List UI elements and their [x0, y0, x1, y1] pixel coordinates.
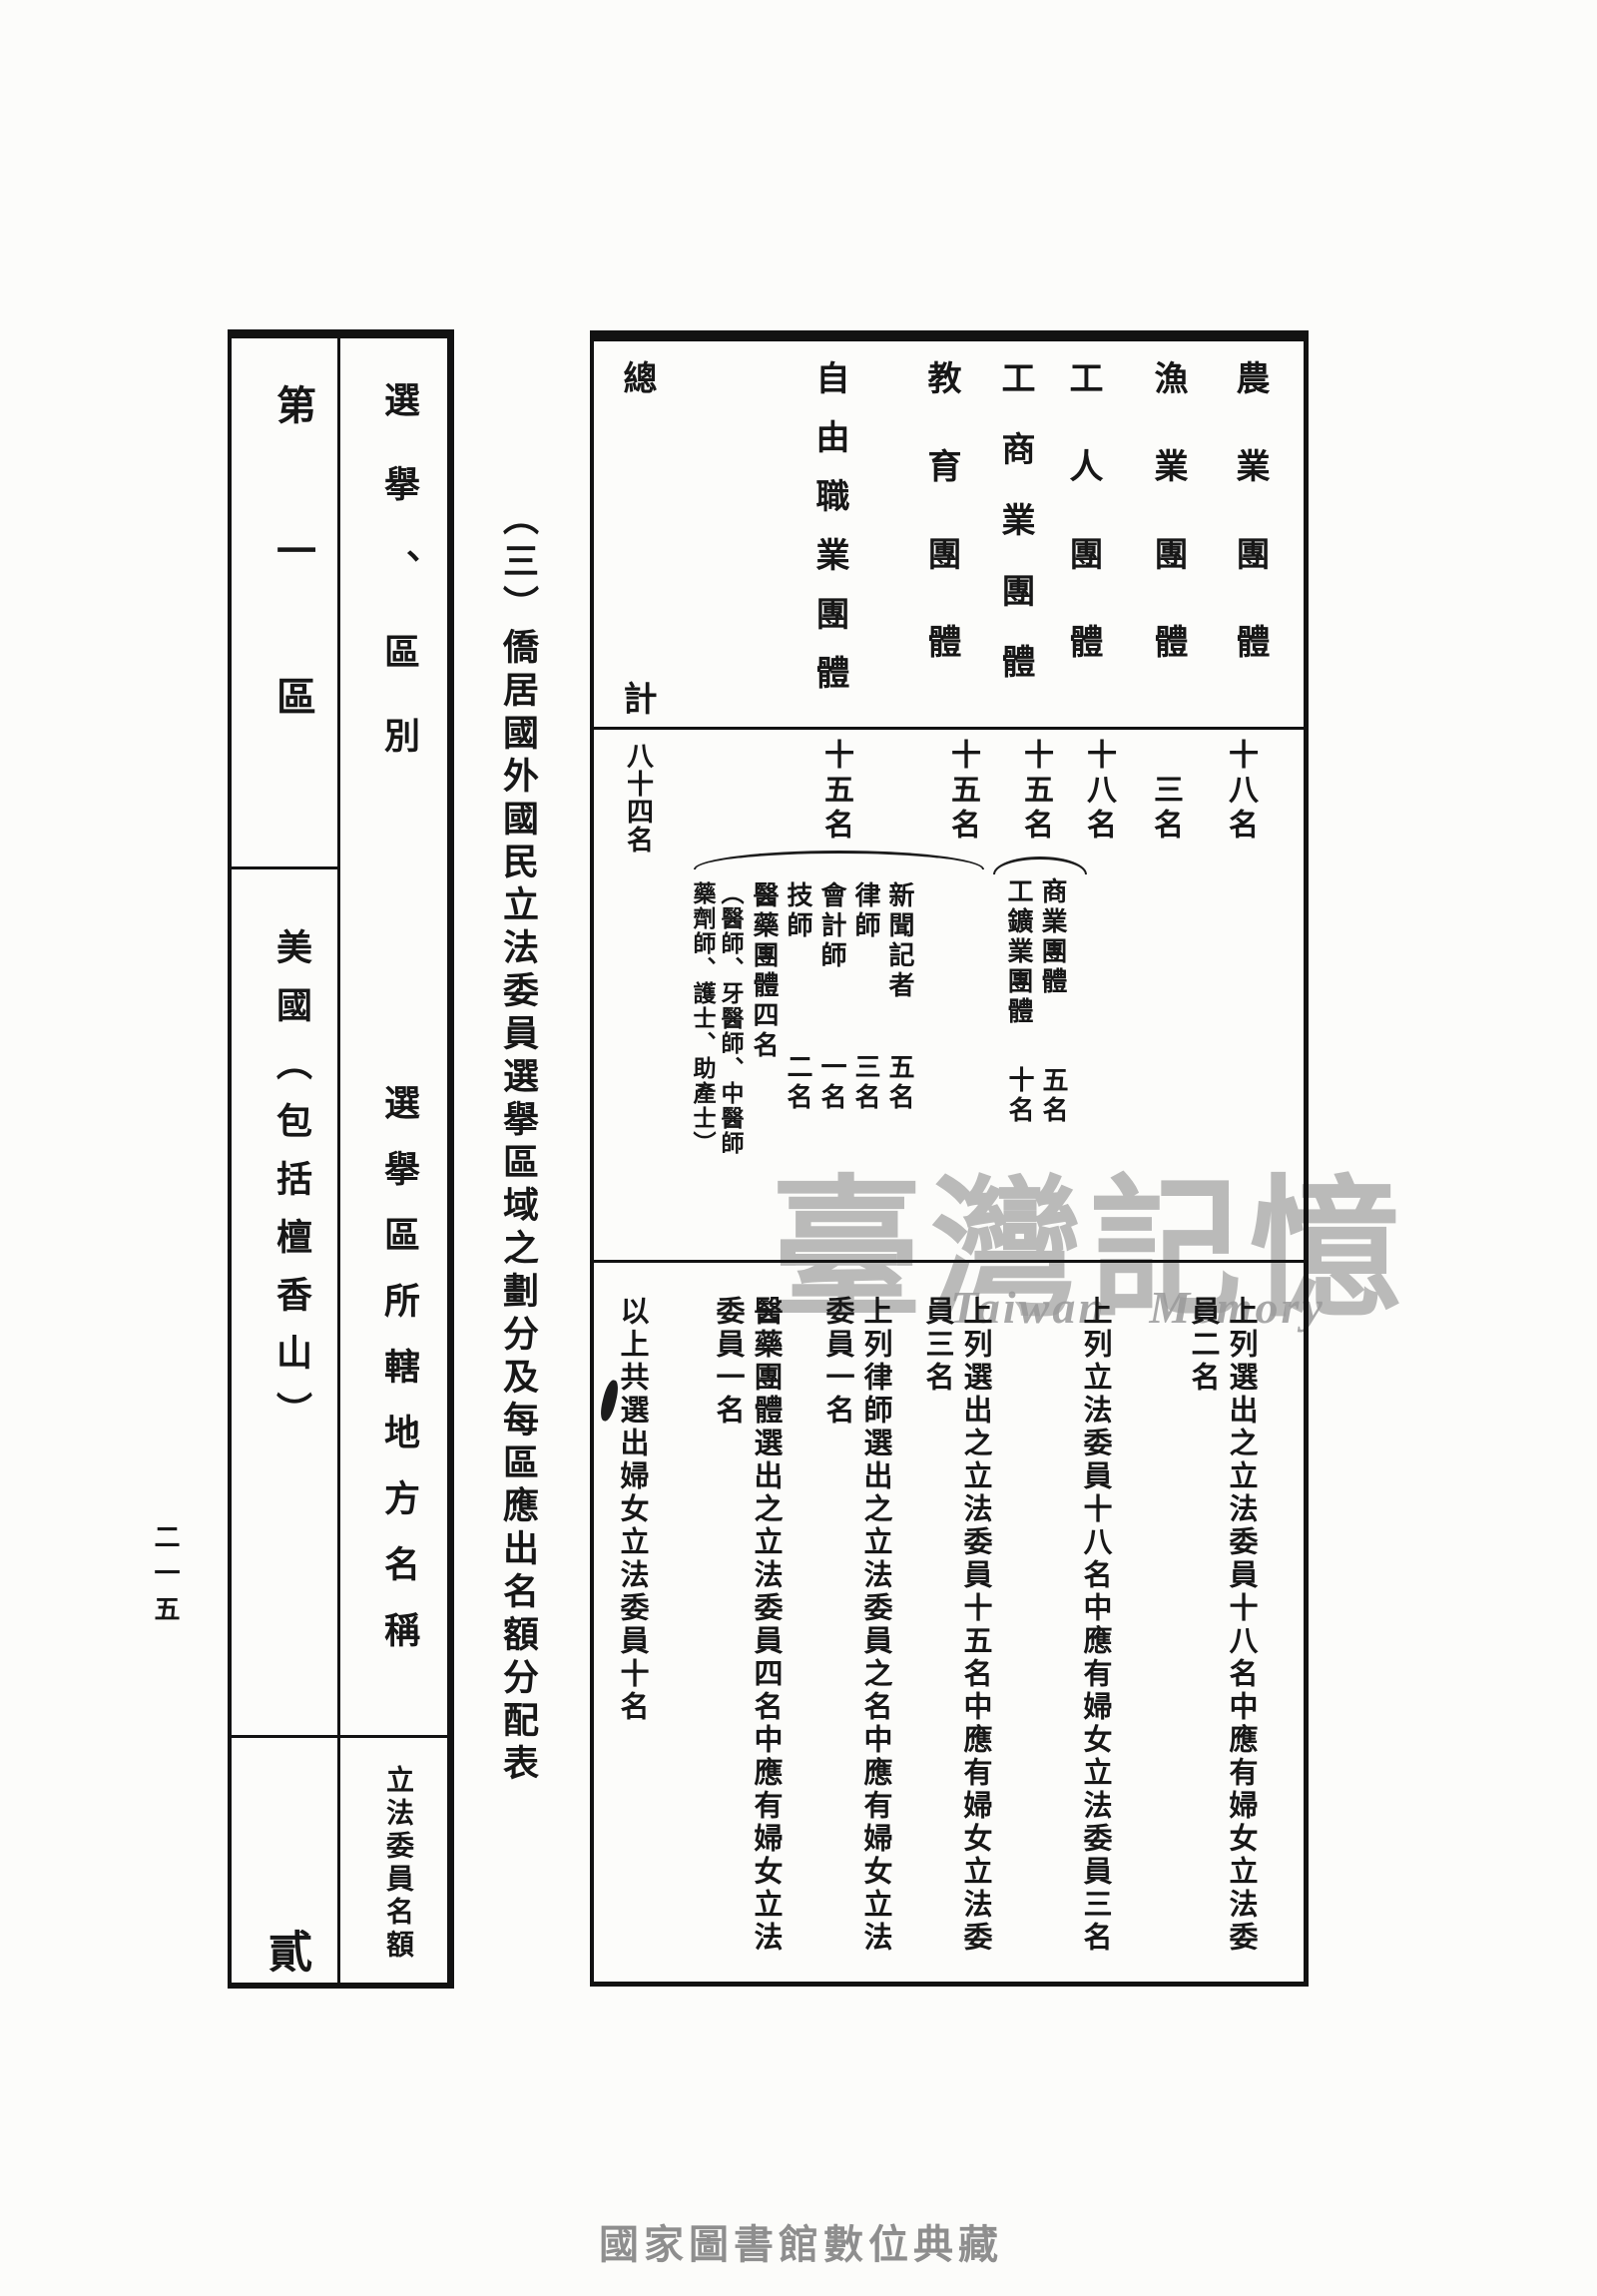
district-label-election-district: 選擧、區別 — [373, 381, 425, 801]
footer-library-caption: 國家圖書館數位典藏 — [599, 2212, 1003, 2270]
subgroup-engineers-count: 二名 — [780, 1053, 816, 1113]
column-header-agriculture: 農業團體 — [1225, 360, 1274, 712]
district-label-covered-area: 選擧區所轄地方名稱 — [373, 1084, 425, 1677]
quota-table-border-bottom — [590, 1982, 1309, 1987]
subgroup-medical-name: 醫藥團體四名 — [746, 881, 783, 1061]
subgroup-lawyers-count: 三名 — [847, 1053, 884, 1113]
subgroup-commerce-name: 商業團體 — [1034, 877, 1071, 997]
district-table-row-divider-1 — [228, 866, 337, 869]
quota-workers: 十八名 — [1076, 739, 1120, 844]
column-header-fishery: 漁業團體 — [1143, 360, 1192, 712]
quota-total: 八十四名 — [619, 742, 658, 854]
subgroup-commerce-count: 五名 — [1035, 1066, 1072, 1126]
district-value-first-district: 第一區 — [264, 384, 321, 822]
note-agriculture-women: 上列選出之立法委員十八名中應有婦女立法委員二名 — [1180, 1296, 1260, 1956]
column-header-workers: 工人團體 — [1058, 360, 1107, 712]
district-table-border-left — [228, 329, 232, 1989]
column-header-free-professions: 自由職業團體 — [804, 360, 853, 714]
district-table-border-top — [228, 329, 454, 338]
subgroup-engineers-name: 技師 — [780, 881, 816, 941]
quota-industry-commerce: 十五名 — [1013, 739, 1057, 844]
quota-fishery: 三名 — [1143, 774, 1187, 844]
subgroup-accountants-count: 一名 — [813, 1053, 850, 1113]
district-table-column-divider — [337, 329, 340, 1989]
column-header-total: 總計 — [612, 360, 661, 1001]
quota-table-border-top — [590, 330, 1309, 341]
note-education-women: 上列選出之立法委員十五名中應有婦女立法委員三名 — [914, 1296, 994, 1956]
column-header-education: 教育團體 — [916, 360, 965, 712]
page-number: 二一五 — [147, 1523, 184, 1631]
note-lawyers-women: 上列律師選出之立法委員之名中應有婦女立法委員一名 — [814, 1296, 894, 1956]
quota-table-header-divider — [594, 727, 1304, 730]
medical-members-column-2: 藥劑師、護士、助產士︶ — [685, 881, 719, 1156]
district-table-row-divider-2 — [228, 1735, 454, 1738]
district-table: 選擧、區別 第一區 選擧區所轄地方名稱 美國（包括檀香山） 立法委員名額 貳 — [228, 329, 454, 1989]
subgroup-journalists-count: 五名 — [881, 1053, 918, 1113]
district-value-usa-honolulu: 美國（包括檀香山） — [266, 928, 317, 1449]
quota-free-professions: 十五名 — [813, 739, 857, 844]
district-table-border-right — [447, 329, 454, 1989]
subgroup-mining-name: 工鑛業團體 — [1000, 877, 1037, 1027]
note-medical-women: 醫藥團體選出之立法委員四名中應有婦女立法委員一名 — [705, 1296, 785, 1956]
quota-table-notes-divider — [594, 1260, 1304, 1263]
subgroup-mining-count: 十名 — [1001, 1066, 1038, 1126]
subgroup-accountants-name: 會計師 — [813, 881, 850, 971]
quota-table: 農業團體 漁業團體 工人團體 工商業團體 教育團體 自由職業團體 總計 十八名 … — [590, 330, 1309, 1987]
column-header-industry-commerce: 工商業團體 — [990, 360, 1039, 715]
quota-agriculture: 十八名 — [1218, 739, 1262, 844]
subgroup-journalists-name: 新聞記者 — [881, 881, 918, 1001]
note-workers-women: 上列立法委員十八名中應有婦女立法委員三名 — [1074, 1296, 1114, 1965]
quota-table-border-left — [590, 330, 594, 1987]
district-value-quota-two: 貳 — [254, 1929, 317, 1973]
section-title: （三）僑居國外國民立法委員選擧區域之劃分及每區應出名額分配表 — [492, 499, 544, 1807]
quota-table-border-right — [1304, 330, 1309, 1987]
district-table-border-bottom — [228, 1983, 454, 1989]
scanned-document-page: 臺灣記憶 Taiwan Memory 選擧、區別 第一區 選擧區所轄地方名稱 美… — [0, 0, 1597, 2296]
quota-education: 十五名 — [940, 739, 984, 844]
subgroup-lawyers-name: 律師 — [847, 881, 884, 941]
free-professions-subgroup-brace — [694, 851, 984, 869]
district-label-legislator-quota: 立法委員名額 — [377, 1765, 417, 1963]
industry-commerce-subgroup-brace — [993, 857, 1087, 874]
